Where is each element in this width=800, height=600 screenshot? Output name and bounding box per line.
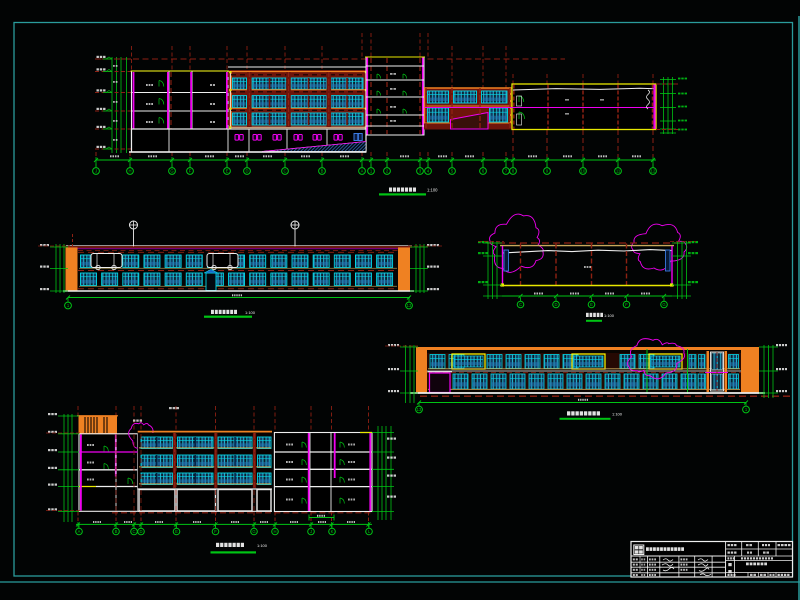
svg-text:G: G (170, 169, 173, 174)
svg-text:13: 13 (407, 303, 412, 308)
svg-text:10: 10 (581, 169, 586, 174)
svg-text:E: E (175, 529, 178, 534)
svg-text:1:100: 1:100 (427, 188, 438, 193)
svg-text:G: G (252, 529, 255, 534)
svg-text:E: E (590, 302, 593, 307)
svg-text:D: D (554, 302, 557, 307)
svg-text:H: H (128, 169, 131, 174)
svg-text:G: G (662, 302, 665, 307)
svg-text:1:100: 1:100 (257, 543, 268, 548)
svg-text:A: A (78, 529, 81, 534)
svg-text:C: C (132, 529, 135, 534)
svg-text:F: F (214, 529, 217, 534)
svg-text:K: K (331, 529, 334, 534)
svg-text:F: F (189, 169, 192, 174)
svg-text:B: B (321, 169, 324, 174)
svg-text:1:100: 1:100 (245, 310, 256, 315)
svg-text:C: C (283, 169, 286, 174)
svg-text:E: E (226, 169, 229, 174)
svg-text:1:100: 1:100 (604, 313, 615, 318)
svg-text:D: D (245, 169, 248, 174)
svg-text:13: 13 (417, 407, 422, 412)
svg-text:J: J (95, 169, 97, 174)
svg-text:B: B (115, 529, 118, 534)
svg-text:11: 11 (616, 169, 621, 174)
svg-text:C: C (519, 302, 522, 307)
svg-text:J: J (310, 529, 312, 534)
svg-text:12: 12 (651, 169, 656, 174)
svg-text:A: A (361, 169, 364, 174)
svg-text:H: H (273, 529, 276, 534)
svg-text:F: F (625, 302, 628, 307)
svg-text:1:100: 1:100 (612, 411, 623, 416)
svg-text:D: D (139, 529, 142, 534)
